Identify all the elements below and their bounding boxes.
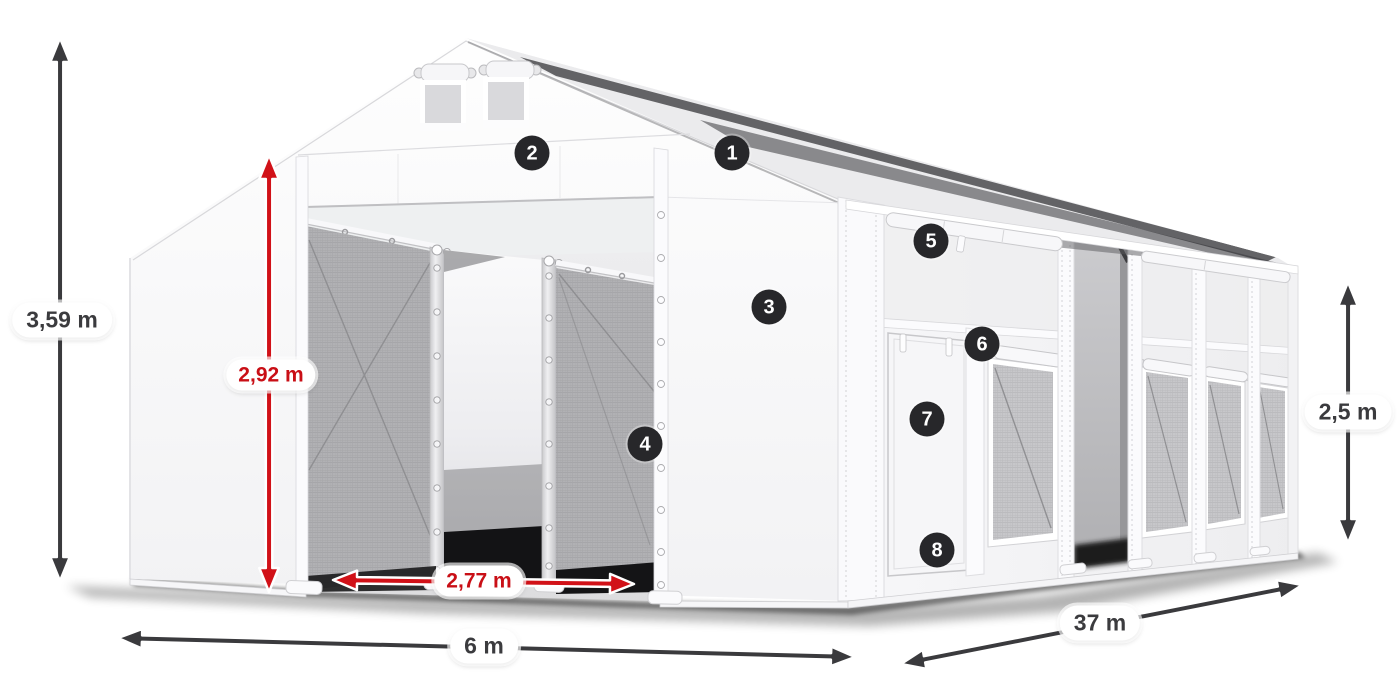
callout-badge-8: 8 (920, 533, 955, 568)
callout-badge-3: 3 (752, 290, 787, 325)
dim-side-height-label: 2,5 m (1305, 395, 1392, 430)
dim-width-label: 6 m (450, 629, 518, 664)
dim-entrance-width-label: 2,77 m (434, 566, 523, 597)
corner-band (838, 197, 884, 601)
dim-entrance-height-label: 2,92 m (226, 360, 315, 391)
callout-badge-2: 2 (515, 136, 550, 171)
callout-badge-1: 1 (715, 136, 750, 171)
callout-badge-6: 6 (965, 327, 1000, 362)
dim-total-height-label: 3,59 m (12, 303, 112, 338)
callout-badge-4: 4 (628, 427, 663, 462)
entrance-opening (306, 190, 666, 610)
interior-pole-right (542, 258, 556, 588)
callout-badge-7: 7 (910, 402, 945, 437)
dim-length-label: 37 m (1060, 606, 1140, 641)
callout-badge-5: 5 (914, 224, 949, 259)
tent-illustration (0, 0, 1400, 700)
side-opening (1074, 240, 1130, 569)
tent-dimensions-figure: 3,59 m 2,92 m 2,77 m 6 m 37 m 2,5 m 1 2 … (0, 0, 1400, 700)
